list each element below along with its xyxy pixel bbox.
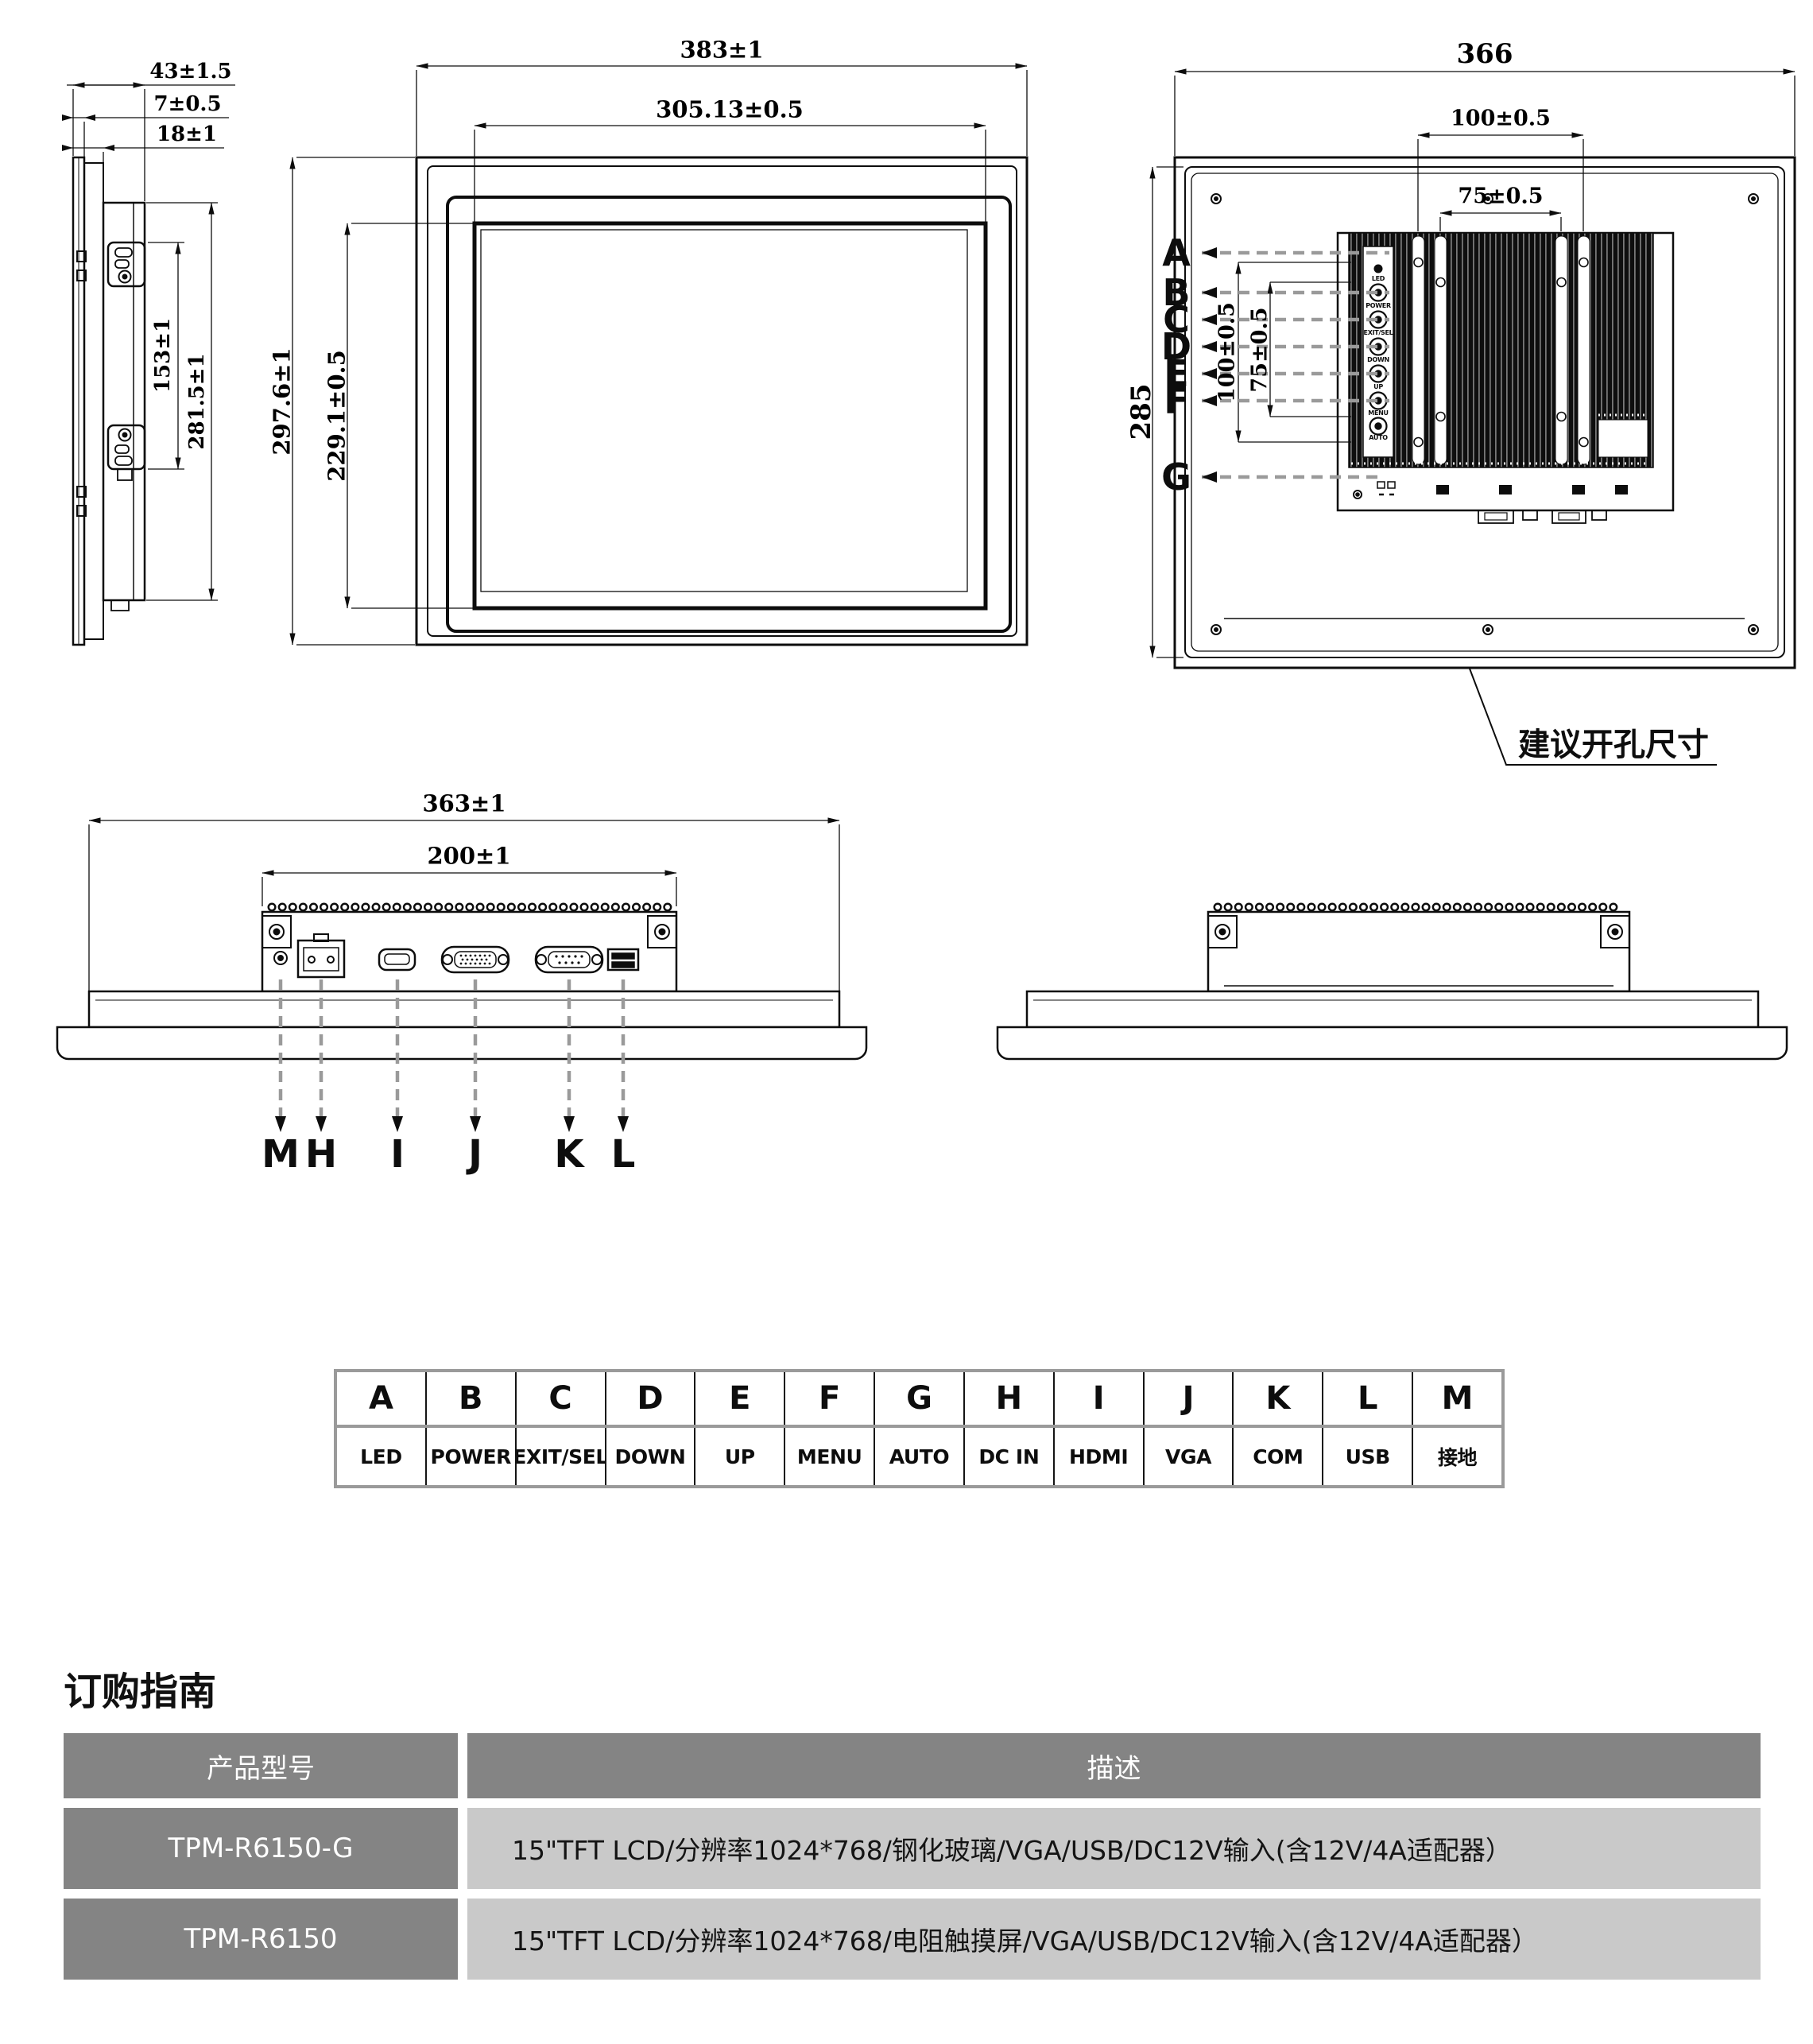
port-label-j: J	[468, 1135, 482, 1173]
legend-header: K	[1234, 1372, 1323, 1425]
legend-value: VGA	[1145, 1428, 1234, 1485]
dim-rear-width: 366	[1457, 41, 1513, 68]
ordering-row-model: TPM-R6150-G	[64, 1808, 458, 1889]
legend-header: D	[606, 1372, 696, 1425]
legend-header: L	[1323, 1372, 1413, 1425]
top-view	[998, 907, 1787, 1059]
legend-value: POWER	[427, 1428, 517, 1485]
rear-label-g: G	[1161, 459, 1191, 495]
legend-header: C	[517, 1372, 606, 1425]
dim-bottom-module-width: 200±1	[427, 845, 510, 868]
port-label-i: I	[390, 1135, 405, 1173]
osd-label-menu: MENU	[1368, 410, 1388, 417]
osd-label-auto: AUTO	[1369, 435, 1388, 441]
dim-vesa-height-75: 75±0.5	[1249, 307, 1271, 392]
legend-header: M	[1413, 1372, 1501, 1425]
ordering-row-model: TPM-R6150	[64, 1899, 458, 1980]
rear-heatsink-module	[1338, 233, 1673, 523]
osd-label-down: DOWN	[1367, 357, 1389, 363]
legend-value: LED	[337, 1428, 427, 1485]
legend-header: G	[875, 1372, 965, 1425]
legend-value: USB	[1323, 1428, 1413, 1485]
legend-value: DC IN	[965, 1428, 1055, 1485]
rear-label-f: F	[1164, 382, 1188, 419]
legend-header: B	[427, 1372, 517, 1425]
port-label-l: L	[611, 1135, 636, 1173]
port-label-k: K	[554, 1135, 583, 1173]
dim-rear-height: 285	[1128, 384, 1155, 440]
dim-side-glass-depth: 7±0.5	[153, 94, 221, 114]
dim-side-height: 281.5±1	[187, 353, 207, 449]
legend-value: 接地	[1413, 1428, 1501, 1485]
legend-header: A	[337, 1372, 427, 1425]
dim-side-depth-total: 43±1.5	[149, 61, 231, 82]
legend-value: AUTO	[875, 1428, 965, 1485]
ordering-row-desc: 15"TFT LCD/分辨率1024*768/钢化玻璃/VGA/USB/DC12…	[467, 1808, 1761, 1889]
port-label-m: M	[261, 1135, 300, 1173]
osd-label-exitsel: EXIT/SEL	[1364, 330, 1393, 336]
legend-value: UP	[695, 1428, 785, 1485]
legend-header-row: A B C D E F G H I J K L M	[337, 1372, 1501, 1428]
ordering-row-desc: 15"TFT LCD/分辨率1024*768/电阻触摸屏/VGA/USB/DC1…	[467, 1899, 1761, 1980]
rear-label-a: A	[1162, 235, 1191, 271]
ordering-header-desc: 描述	[467, 1733, 1761, 1798]
legend-header: H	[965, 1372, 1055, 1425]
osd-label-led: LED	[1372, 276, 1385, 282]
legend-header: I	[1055, 1372, 1145, 1425]
osd-label-power: POWER	[1366, 303, 1391, 309]
port-label-h: H	[305, 1135, 337, 1173]
legend-header: J	[1145, 1372, 1234, 1425]
cutout-size-callout: 建议开孔尺寸	[1518, 719, 1709, 765]
datasheet-page: 43±1.5 7±0.5 18±1 153±1 281.5±1 383±1 30…	[0, 0, 1813, 2044]
port-legend-table: A B C D E F G H I J K L M LED POWER EXIT…	[334, 1369, 1505, 1488]
dim-front-active-width: 305.13±0.5	[656, 99, 804, 122]
dim-front-height: 297.6±1	[271, 347, 294, 455]
legend-header: F	[785, 1372, 875, 1425]
dim-vesa-width-100: 100±0.5	[1451, 108, 1551, 130]
dim-bottom-width: 363±1	[422, 793, 506, 816]
legend-value: DOWN	[606, 1428, 696, 1485]
legend-value: HDMI	[1055, 1428, 1145, 1485]
dim-front-active-height: 229.1±0.5	[326, 350, 349, 482]
osd-label-up: UP	[1373, 384, 1383, 390]
legend-value: EXIT/SEL	[517, 1428, 606, 1485]
legend-value: COM	[1234, 1428, 1323, 1485]
legend-header: E	[695, 1372, 785, 1425]
dim-vesa-width-75: 75±0.5	[1458, 186, 1543, 208]
dim-vesa-height-100: 100±0.5	[1217, 302, 1238, 402]
ordering-guide-title: 订购指南	[64, 1660, 216, 1716]
front-view	[292, 66, 1027, 645]
dim-front-width: 383±1	[680, 39, 763, 62]
dim-side-bracket-span: 153±1	[153, 318, 173, 393]
ordering-header-model: 产品型号	[64, 1733, 458, 1798]
side-view	[62, 85, 235, 645]
legend-value-row: LED POWER EXIT/SEL DOWN UP MENU AUTO DC …	[337, 1428, 1501, 1485]
rear-view	[1152, 72, 1795, 765]
legend-value: MENU	[785, 1428, 875, 1485]
dim-side-bezel-depth: 18±1	[157, 124, 217, 145]
